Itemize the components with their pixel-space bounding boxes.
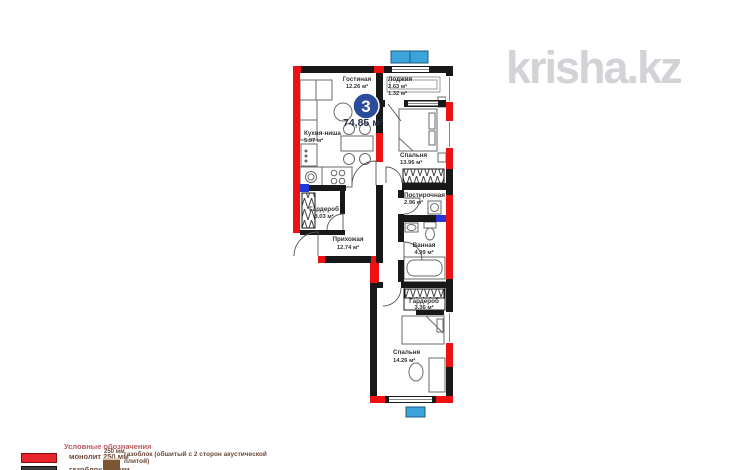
room-loggia-area2: 1.32 м² (388, 90, 407, 97)
room-bedroom2-name: Спальня (393, 349, 421, 356)
bedroom1-wardrobe-icon (403, 169, 444, 183)
room-loggia-name: Лоджия (388, 76, 413, 83)
room-hallway-name: Прихожая (332, 236, 363, 243)
bed2-icon (402, 316, 444, 344)
entry-door (294, 232, 318, 256)
room-bath-area: 4.99 м² (414, 249, 433, 256)
room-bedroom1-area: 13.96 м² (400, 159, 422, 166)
room-kitchen-name: Кухня-ниша (304, 130, 341, 137)
screenshot: krisha.kz (0, 0, 750, 470)
bedroom1-door (386, 167, 402, 183)
floor-plan: 3 74,85 м² Гостиная 12.26 м² Лоджия 2.63… (0, 0, 750, 470)
room-wardrobe2-area: 3.36 м² (414, 304, 433, 311)
legend-note-acoustic: 250 мм (104, 449, 125, 456)
room-laundry-area: 2.96 м² (404, 199, 423, 206)
legend-swatch-acoustic (103, 458, 120, 470)
bedroom2-door (383, 288, 401, 306)
washing-machine-icon (428, 201, 441, 214)
legend-swatch-gasblock (21, 466, 57, 470)
room-living-area: 12.26 м² (346, 83, 368, 90)
unit-number: 3 (361, 97, 370, 116)
room-wardrobe1-name: Гардероб (309, 205, 339, 213)
room-kitchen-area: 5.97 м² (304, 137, 323, 144)
legend-label-acoustic: газоблок (обшитый с 2 сторон акустическо… (124, 451, 284, 466)
room-wardrobe2-name: Гардероб (409, 297, 439, 305)
room-living-name: Гостиная (343, 76, 372, 83)
room-loggia-area: 2.63 м² (388, 83, 407, 90)
unit-total-area: 74,85 м² (343, 117, 384, 129)
room-laundry-name: Постирочная (404, 192, 445, 199)
room-bath-name: Ванная (413, 242, 436, 249)
room-bedroom1-name: Спальня (400, 152, 428, 159)
legend-swatch-monolith (21, 453, 57, 463)
wardrobe2-icon (405, 289, 444, 298)
room-bedroom2-area: 14.26 м² (393, 357, 415, 364)
legend-label-gasblock: газоблок 200 мм (69, 466, 130, 470)
living-door (352, 161, 376, 185)
room-hallway-area: 12.74 м² (337, 244, 359, 251)
room-wardrobe1-area: 3.03 м² (314, 213, 333, 220)
dining-table-icon (341, 124, 373, 165)
